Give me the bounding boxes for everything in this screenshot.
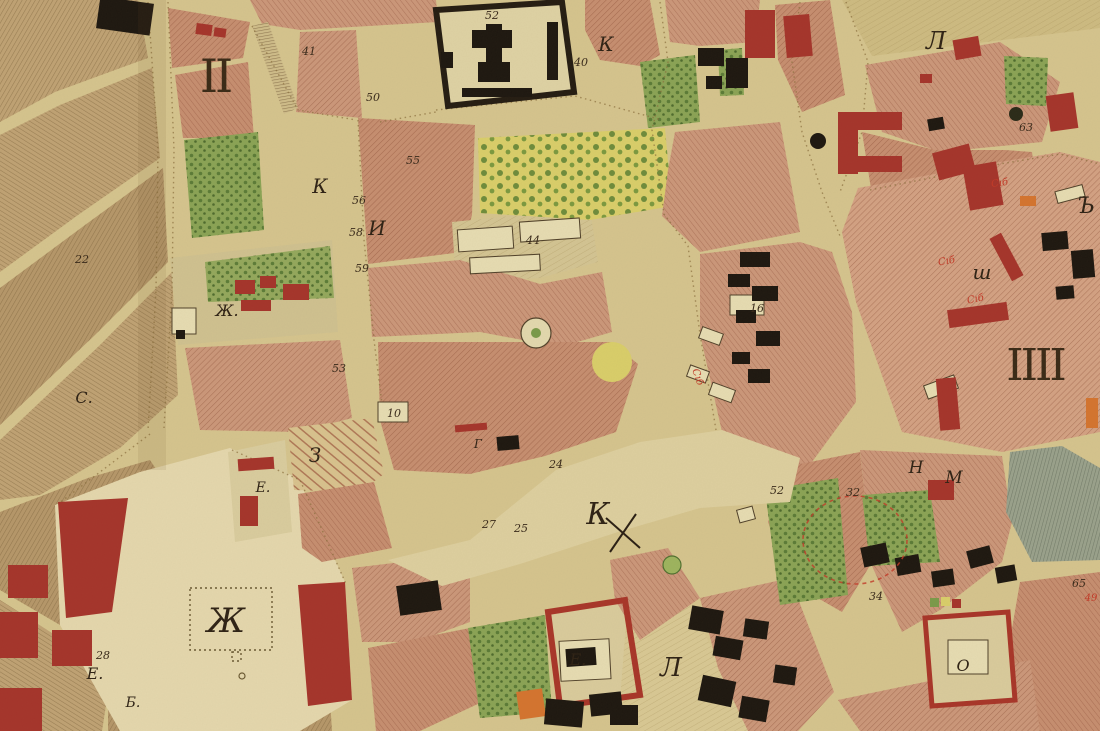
map-viewport: IIIIIIКИКЛЪшЖ.С.ЗЕ.ЖЕ.Б.КЕ.ЛНМОГ52415040…	[0, 0, 1100, 731]
paper-grain-overlay	[0, 0, 1100, 731]
city-map-svg: IIIIIIКИКЛЪшЖ.С.ЗЕ.ЖЕ.Б.КЕ.ЛНМОГ52415040…	[0, 0, 1100, 731]
